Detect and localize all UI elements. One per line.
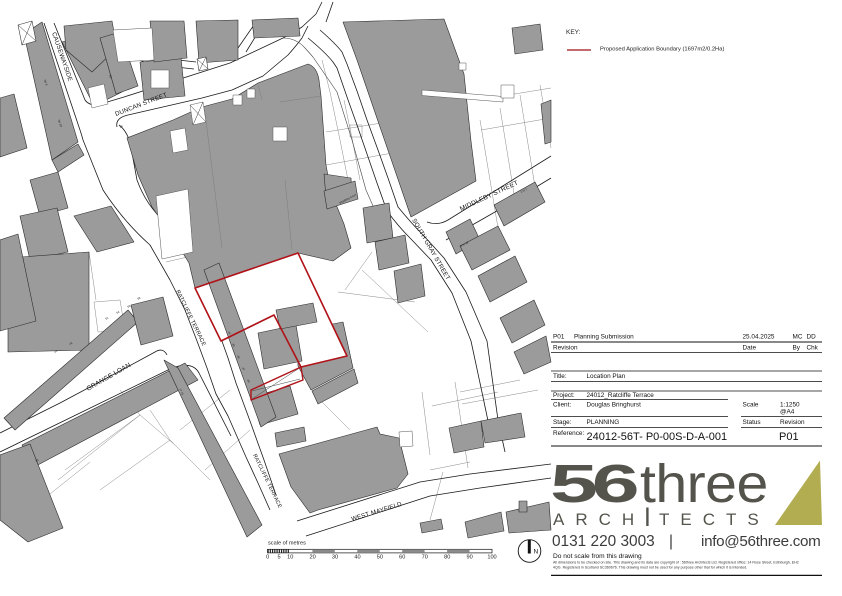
svg-text:24012_Ratcliffe Terrace: 24012_Ratcliffe Terrace [587, 392, 655, 399]
svg-text:Revision: Revision [553, 345, 578, 352]
svg-text:PLANNING: PLANNING [587, 419, 620, 426]
svg-text:4QG. Registered in Scotland SC: 4QG. Registered in Scotland SC360676. Th… [553, 566, 747, 570]
svg-text:Reference:: Reference: [553, 430, 584, 437]
svg-text:Title:: Title: [553, 373, 567, 380]
svg-text:Revision: Revision [780, 419, 805, 426]
svg-text:30: 30 [332, 555, 338, 561]
svg-text:20: 20 [309, 555, 315, 561]
svg-text:TECTS: TECTS [659, 510, 770, 529]
svg-text:All dimensions to be checked o: All dimensions to be checked on site. Th… [553, 561, 799, 565]
svg-text:0: 0 [266, 555, 269, 561]
svg-text:90: 90 [466, 555, 472, 561]
svg-text:Client:: Client: [553, 402, 571, 409]
svg-text:scale of metres: scale of metres [268, 541, 306, 547]
svg-text:Stage:: Stage: [553, 419, 572, 426]
svg-text:0131 220 3003: 0131 220 3003 [552, 533, 655, 550]
svg-text:Location Plan: Location Plan [587, 373, 626, 380]
svg-text:100: 100 [487, 555, 496, 561]
svg-text:70: 70 [422, 555, 428, 561]
svg-text:Status: Status [743, 419, 761, 426]
svg-text:24012-56T- P0-00S-D-A-001: 24012-56T- P0-00S-D-A-001 [587, 431, 728, 443]
svg-text:60: 60 [399, 555, 405, 561]
svg-text:Planning Submission: Planning Submission [574, 334, 634, 341]
svg-text:P01: P01 [779, 431, 799, 443]
svg-text:|: | [669, 533, 673, 550]
svg-text:Do not scale from this drawing: Do not scale from this drawing [553, 553, 642, 560]
svg-text:By: By [793, 345, 801, 352]
svg-text:Date: Date [743, 345, 757, 352]
svg-text:N: N [534, 549, 539, 556]
svg-text:info@56three.com: info@56three.com [701, 533, 821, 550]
svg-text:DD: DD [807, 334, 817, 341]
svg-text:40: 40 [354, 555, 360, 561]
svg-text:MC: MC [793, 334, 803, 341]
svg-text:@A4: @A4 [780, 409, 795, 416]
svg-text:5: 5 [277, 555, 280, 561]
svg-text:Douglas Bringhurst: Douglas Bringhurst [587, 402, 642, 409]
svg-text:three: three [640, 453, 768, 513]
svg-text:P01: P01 [553, 334, 565, 341]
svg-text:Proposed Application Boundary: Proposed Application Boundary (1697m2/0.… [600, 47, 724, 53]
svg-text:Chk: Chk [807, 345, 819, 352]
svg-text:50: 50 [377, 555, 383, 561]
svg-text:Project:: Project: [553, 392, 575, 399]
svg-text:25.04.2025: 25.04.2025 [743, 334, 775, 341]
svg-text:1:1250: 1:1250 [780, 402, 800, 409]
svg-text:Scale: Scale [743, 402, 759, 409]
svg-text:KEY:: KEY: [566, 29, 581, 36]
svg-text:10: 10 [287, 555, 293, 561]
svg-text:56: 56 [550, 454, 637, 514]
svg-text:ARCH: ARCH [553, 510, 645, 529]
svg-text:80: 80 [444, 555, 450, 561]
